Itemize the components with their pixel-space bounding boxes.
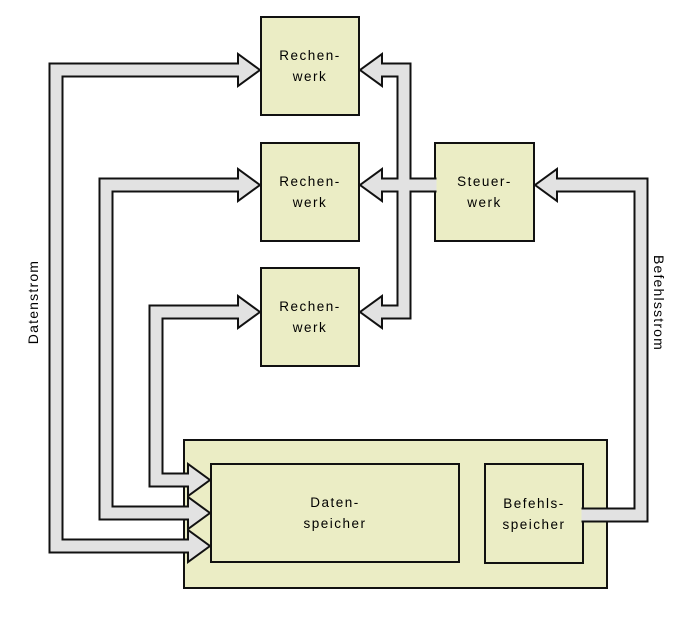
steuerwerk-label-line1: Steuer- xyxy=(457,171,512,192)
control-flow-connector-fill xyxy=(360,54,437,328)
befehlsstrom-label: Befehlsstrom xyxy=(647,223,667,383)
datenspeicher-label-line2: speicher xyxy=(303,513,366,534)
befehlsspeicher-label-line2: speicher xyxy=(502,514,565,535)
control-flow-connector-outline xyxy=(360,54,437,328)
rechenwerk-3-label-line1: Rechen- xyxy=(279,296,341,317)
befehlsspeicher-box: Befehls- speicher xyxy=(484,463,584,564)
rechenwerk-1-label-line1: Rechen- xyxy=(279,45,341,66)
rechenwerk-1-box: Rechen- werk xyxy=(260,16,360,116)
steuerwerk-box: Steuer- werk xyxy=(434,142,535,242)
rechenwerk-2-label-line1: Rechen- xyxy=(279,171,341,192)
datenspeicher-label-line1: Daten- xyxy=(310,492,360,513)
datenstrom-label: Datenstrom xyxy=(25,222,45,382)
rechenwerk-1-label-line2: werk xyxy=(293,66,328,87)
steuerwerk-label-line2: werk xyxy=(467,192,502,213)
rechenwerk-2-box: Rechen- werk xyxy=(260,142,360,242)
rechenwerk-3-box: Rechen- werk xyxy=(260,267,360,367)
befehlsspeicher-label-line1: Befehls- xyxy=(503,493,565,514)
rechenwerk-2-label-line2: werk xyxy=(293,192,328,213)
rechenwerk-3-label-line2: werk xyxy=(293,317,328,338)
simd-architecture-diagram: Datenstrom Befehlsstrom Rechen- werk Rec… xyxy=(0,0,693,620)
datenspeicher-box: Daten- speicher xyxy=(210,463,460,563)
